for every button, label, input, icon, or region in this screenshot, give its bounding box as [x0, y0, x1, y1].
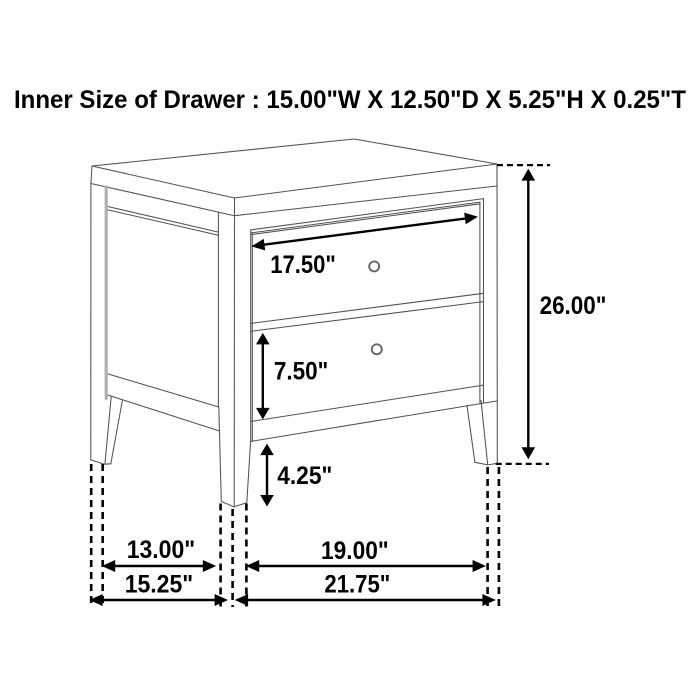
svg-text:17.50": 17.50" — [270, 251, 336, 279]
svg-text:15.25": 15.25" — [125, 571, 194, 599]
svg-text:13.00": 13.00" — [127, 536, 196, 564]
svg-text:7.50": 7.50" — [274, 358, 328, 386]
svg-text:26.00": 26.00" — [540, 292, 607, 320]
svg-text:21.75": 21.75" — [324, 571, 390, 599]
svg-text:Inner Size of Drawer : 15.00"W: Inner Size of Drawer : 15.00"W X 12.50"D… — [14, 86, 686, 114]
svg-text:19.00": 19.00" — [321, 537, 389, 565]
svg-text:4.25": 4.25" — [277, 462, 332, 490]
